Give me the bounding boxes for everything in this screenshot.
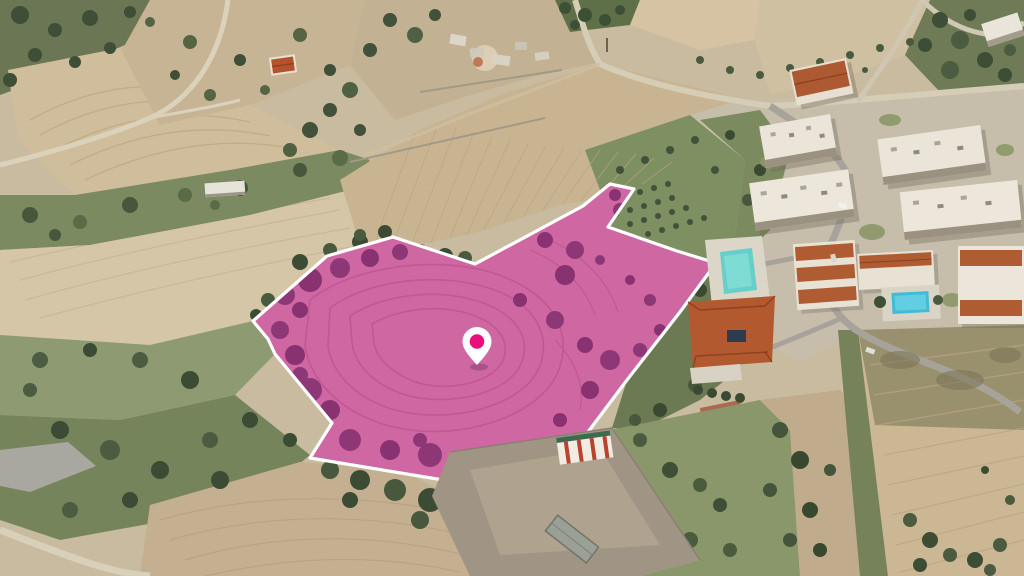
villa-pool-water xyxy=(724,253,752,289)
solar-panels xyxy=(727,330,746,342)
house-topleft xyxy=(269,54,297,75)
aerial-photo-stage xyxy=(0,0,1024,576)
aerial-photo xyxy=(0,0,1024,576)
terracotta-block-east xyxy=(958,246,1024,328)
pin-dot xyxy=(470,334,485,349)
greenhouse-left xyxy=(204,181,245,198)
terracotta-row-west xyxy=(793,240,864,314)
pool-tree xyxy=(874,296,886,308)
pin-shadow xyxy=(470,364,488,371)
pool-tree-2 xyxy=(933,295,943,305)
community-pool-area xyxy=(881,285,941,322)
